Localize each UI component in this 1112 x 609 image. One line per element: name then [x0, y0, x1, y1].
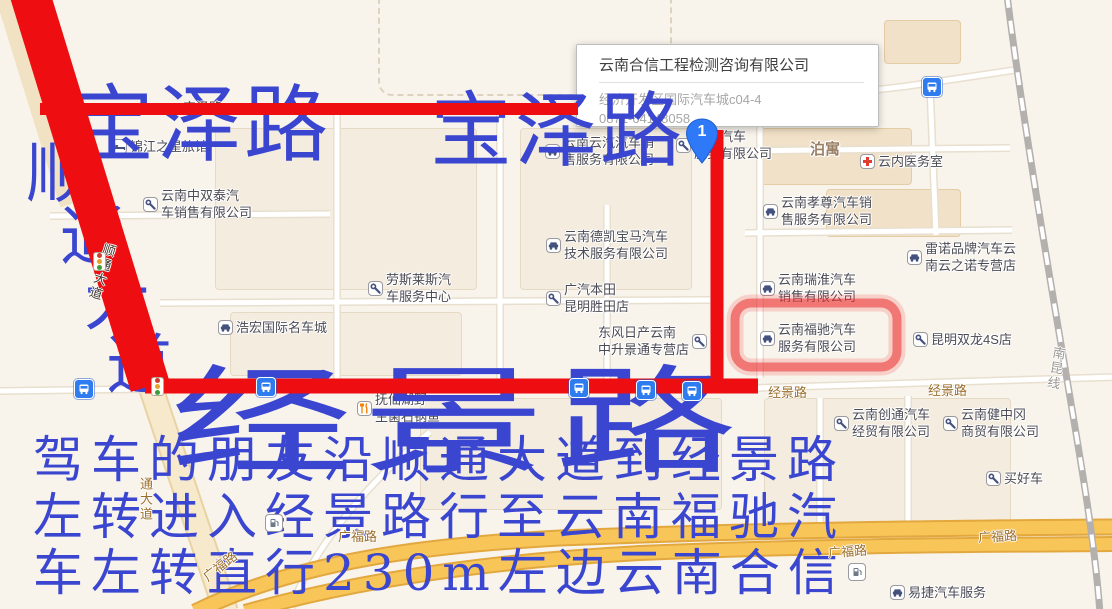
bus-stop-icon[interactable] — [74, 379, 94, 399]
poi-label: 锦江之星旅馆 — [130, 138, 208, 155]
bus-stop-icon[interactable] — [569, 378, 589, 398]
map-poi[interactable]: 云南福驰汽车服务有限公司 — [760, 321, 856, 355]
poi-label: 云南中双泰汽车销售有限公司 — [161, 187, 252, 221]
poi-label: 抚仙湖野生菌石锅鱼 — [375, 391, 440, 425]
map-poi[interactable]: 雷诺品牌汽车云南云之诺专营店 — [907, 240, 1016, 274]
road-name-label: 宝泽路 — [183, 97, 222, 116]
wrench-icon — [368, 281, 383, 296]
car-icon — [546, 238, 561, 253]
poi-label: 劳斯莱斯汽车服务中心 — [386, 271, 451, 305]
info-window[interactable]: 云南合信工程检测咨询有限公司 经济开发区国际汽车城c04-4 0871-6414… — [576, 44, 879, 127]
poi-label: 云南孝尊汽车销售服务有限公司 — [781, 194, 872, 228]
road-name-label: 通大道 — [136, 477, 155, 522]
poi-label: 云南健中冈商贸有限公司 — [961, 406, 1039, 440]
map-poi[interactable]: 东风日产云南中升景通专营店 — [598, 324, 707, 358]
car-icon — [218, 320, 233, 335]
info-window-phone: 0871-64148058 — [599, 111, 864, 126]
car-icon — [760, 281, 775, 296]
poi-label: 东风日产云南中升景通专营店 — [598, 324, 689, 358]
traffic-light-icon — [93, 252, 106, 271]
map-poi[interactable]: 昆明双龙4S店 — [913, 331, 1012, 348]
map-poi[interactable]: 云南瑞淮汽车销售有限公司 — [760, 271, 856, 305]
road-name-label: 经景路 — [768, 382, 807, 401]
fork-icon — [357, 401, 372, 416]
poi-label: 云内医务室 — [878, 153, 943, 170]
bed-icon — [112, 139, 127, 154]
poi-label: 云南福驰汽车服务有限公司 — [778, 321, 856, 355]
wrench-icon — [834, 416, 849, 431]
map-poi[interactable]: 劳斯莱斯汽车服务中心 — [368, 271, 451, 305]
poi-label: 云南德凯宝马汽车技术服务有限公司 — [564, 228, 668, 262]
location-marker[interactable]: 1 — [685, 118, 719, 165]
poi-label: 易捷汽车服务 — [908, 584, 986, 601]
gas-station-icon — [848, 563, 866, 581]
map-poi[interactable]: 买好车 — [986, 470, 1043, 487]
car-icon — [760, 331, 775, 346]
map-poi[interactable]: 云南云汽汽车销售服务有限公司 — [545, 134, 654, 168]
car-icon — [545, 144, 560, 159]
bus-stop-icon[interactable] — [682, 381, 702, 401]
poi-label: 雷诺品牌汽车云南云之诺专营店 — [925, 240, 1016, 274]
map-poi[interactable]: 云内医务室 — [860, 153, 943, 170]
info-window-title: 云南合信工程检测咨询有限公司 — [599, 54, 864, 83]
poi-label: 泊寓 — [810, 141, 840, 158]
car-icon — [763, 204, 778, 219]
poi-label: 浩宏国际名车城 — [236, 319, 327, 336]
road-name-label: 经景路 — [928, 380, 967, 399]
wrench-icon — [943, 416, 958, 431]
poi-label: 云南创通汽车经贸有限公司 — [852, 406, 930, 440]
map-poi[interactable]: 浩宏国际名车城 — [218, 319, 327, 336]
car-icon — [907, 250, 922, 265]
road-name-label: 广福路 — [978, 525, 1018, 546]
cross-icon — [860, 154, 875, 169]
wrench-icon — [913, 332, 928, 347]
map-canvas[interactable]: 云南合信工程检测咨询有限公司 经济开发区国际汽车城c04-4 0871-6414… — [0, 0, 1112, 609]
poi-label: 昆明双龙4S店 — [931, 331, 1012, 348]
car-icon — [890, 585, 905, 600]
map-poi[interactable]: 云南德凯宝马汽车技术服务有限公司 — [546, 228, 668, 262]
gas-station-icon — [265, 514, 283, 532]
map-poi[interactable]: 广汽本田昆明胜田店 — [546, 281, 629, 315]
map-poi[interactable]: 云南中双泰汽车销售有限公司 — [143, 187, 252, 221]
traffic-light-icon — [151, 377, 164, 396]
wrench-icon — [546, 291, 561, 306]
wrench-icon — [986, 471, 1001, 486]
info-window-address: 经济开发区国际汽车城c04-4 — [599, 89, 864, 108]
road-name-label: 广福路 — [338, 526, 377, 545]
map-poi[interactable]: 云南创通汽车经贸有限公司 — [834, 406, 930, 440]
poi-label: 云南云汽汽车销售服务有限公司 — [563, 134, 654, 168]
poi-label: 云南瑞淮汽车销售有限公司 — [778, 271, 856, 305]
road-name-label: 广福路 — [827, 540, 867, 562]
map-poi[interactable]: 云南孝尊汽车销售服务有限公司 — [763, 194, 872, 228]
poi-label: 买好车 — [1004, 470, 1043, 487]
map-poi[interactable]: 云南健中冈商贸有限公司 — [943, 406, 1039, 440]
bus-stop-icon[interactable] — [922, 77, 942, 97]
wrench-icon — [143, 197, 158, 212]
map-poi[interactable]: 锦江之星旅馆 — [112, 138, 208, 155]
bus-stop-icon[interactable] — [636, 380, 656, 400]
poi-label: 广汽本田昆明胜田店 — [564, 281, 629, 315]
map-poi[interactable]: 易捷汽车服务 — [890, 584, 986, 601]
bus-stop-icon[interactable] — [256, 377, 276, 397]
place-label[interactable]: 泊寓 — [810, 141, 840, 158]
marker-number: 1 — [685, 123, 719, 141]
map-poi[interactable]: 抚仙湖野生菌石锅鱼 — [357, 391, 440, 425]
wrench-icon — [692, 334, 707, 349]
